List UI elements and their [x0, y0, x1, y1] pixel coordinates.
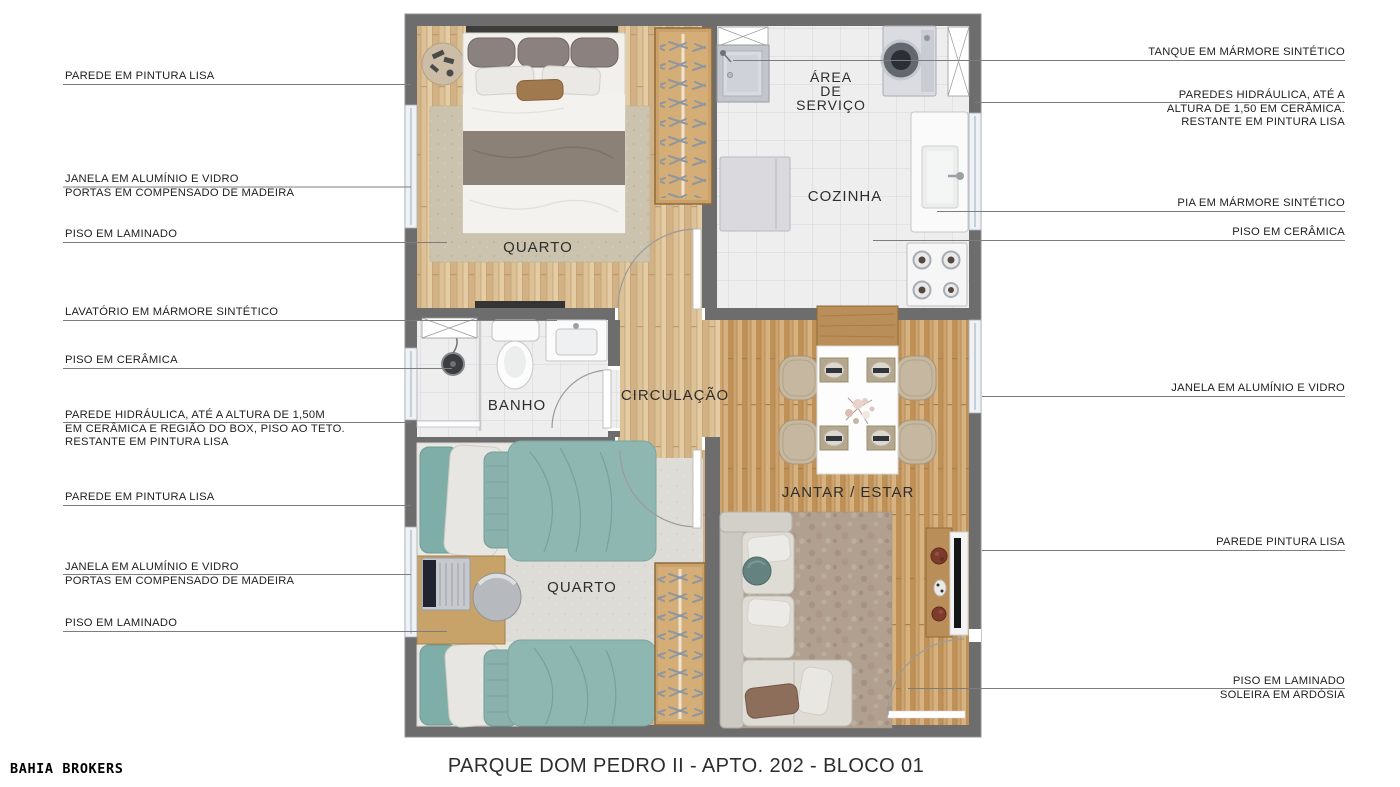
annotation-parede-pintura-lisa-2: PAREDE EM PINTURA LISA: [65, 491, 215, 505]
window-cozinha: [969, 113, 981, 230]
vanity-sink: [546, 320, 607, 361]
floor-plan-sheet: QUARTO ÁREA DE SERVIÇO COZINHA BANHO CIR…: [0, 0, 1400, 787]
window-quarto-1: [405, 105, 417, 228]
plant: [931, 548, 947, 564]
annotation-tanque: TANQUE EM MÁRMORE SINTÉTICO: [1148, 46, 1345, 60]
annotation-janela-portas-1: JANELA EM ALUMÍNIO E VIDRO PORTAS EM COM…: [65, 173, 294, 200]
stove: [907, 243, 967, 306]
bed-single-bottom: [417, 640, 656, 728]
tv: [954, 538, 961, 628]
desk: [417, 556, 521, 644]
threshold: [888, 711, 965, 718]
refrigerator: [720, 157, 790, 231]
annotation-parede-pintura-right: PAREDE PINTURA LISA: [1216, 536, 1345, 550]
label-cozinha: COZINHA: [808, 188, 883, 205]
annotation-piso-laminado-2: PISO EM LAMINADO: [65, 617, 177, 631]
nightstand: [422, 43, 464, 85]
annotation-parede-pintura-lisa-1: PAREDE EM PINTURA LISA: [65, 70, 215, 84]
annotation-piso-laminado-1: PISO EM LAMINADO: [65, 228, 177, 242]
tray: [934, 580, 946, 596]
window-quarto-2: [405, 527, 417, 637]
bed-double: [463, 33, 625, 233]
annotation-pia: PIA EM MÁRMORE SINTÉTICO: [1177, 197, 1345, 211]
annotation-piso-soleira: PISO EM LAMINADO SOLEIRA EM ARDÓSIA: [1220, 675, 1345, 702]
pillows: [468, 38, 618, 101]
window-service-top: [718, 27, 768, 46]
window-banho: [405, 348, 417, 420]
wardrobe-2: [655, 563, 705, 725]
floor-circulacao: [620, 320, 720, 437]
label-banho: BANHO: [488, 397, 546, 414]
plan-title: PARQUE DOM PEDRO II - APTO. 202 - BLOCO …: [386, 755, 986, 778]
brand-logo: BAHIA BROKERS: [10, 761, 123, 777]
brown-pillow: [744, 683, 799, 719]
wardrobe-1: [655, 28, 712, 204]
annotation-paredes-hidraulica-right: PAREDES HIDRÁULICA, ATÉ A ALTURA DE 1,50…: [1167, 89, 1345, 130]
annotation-lavatorio: LAVATÓRIO EM MÁRMORE SINTÉTICO: [65, 306, 278, 320]
window-jantar: [969, 320, 981, 413]
window-service-right: [948, 27, 969, 96]
counter-sink: [911, 112, 968, 232]
laptop: [422, 558, 470, 610]
dresser: [475, 301, 565, 308]
annotation-parede-hidraulica-left: PAREDE HIDRÁULICA, ATÉ A ALTURA DE 1,50M…: [65, 409, 345, 450]
annotation-piso-ceramica-right: PISO EM CERÂMICA: [1232, 226, 1345, 240]
label-quarto-1: QUARTO: [503, 239, 573, 256]
label-circulacao: CIRCULAÇÃO: [621, 387, 729, 404]
annotation-janela-portas-2: JANELA EM ALUMÍNIO E VIDRO PORTAS EM COM…: [65, 561, 294, 588]
label-area-servico-3: SERVIÇO: [796, 97, 866, 113]
label-quarto-2: QUARTO: [547, 579, 617, 596]
annotation-janela-right: JANELA EM ALUMÍNIO E VIDRO: [1171, 382, 1345, 396]
tv-console: [926, 528, 968, 637]
plant: [932, 607, 946, 621]
annotation-piso-ceramica-left: PISO EM CERÂMICA: [65, 354, 178, 368]
laundry-tank: [717, 45, 769, 102]
label-jantar-estar: JANTAR / ESTAR: [782, 484, 915, 501]
